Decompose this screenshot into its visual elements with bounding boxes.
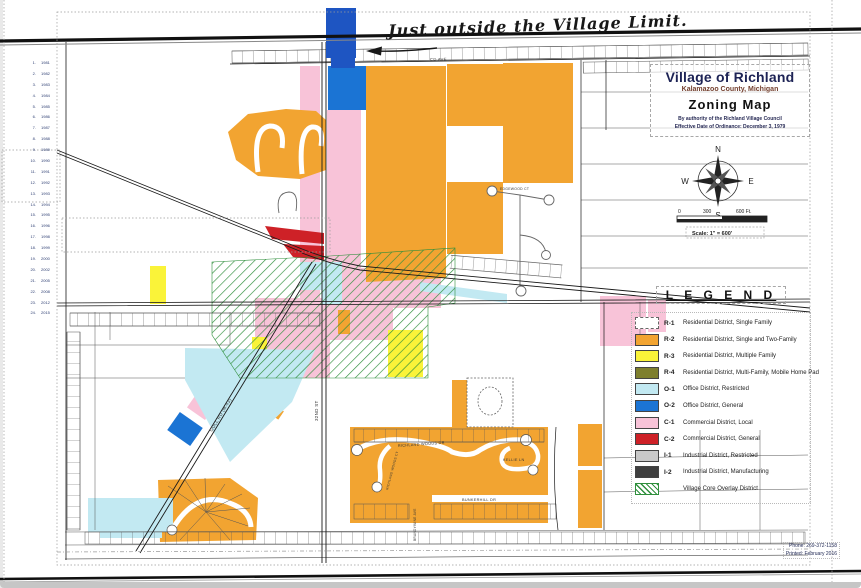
amendment-row: 20.2002 — [27, 267, 50, 274]
amendment-row: 16.1996 — [27, 223, 50, 230]
legend-code: R-3 — [664, 353, 678, 360]
legend-row: O-1 Office District, Restricted — [635, 383, 807, 395]
legend-swatch — [635, 383, 659, 395]
legend-code: O-1 — [664, 386, 678, 393]
amendment-row: 21.2005 — [27, 278, 50, 285]
legend-label: Village Core Overlay District — [683, 486, 758, 492]
scale-bar: 0 300 600 Ft. Scale: 1" = 600' — [677, 209, 767, 238]
footer-printed: Printed: February 2016 — [786, 551, 837, 559]
amendment-row: 15.1995 — [27, 212, 50, 219]
street-label-bunkerhill-dr: BUNKERHILL DR — [462, 498, 496, 502]
legend-label: Commercial District, General — [683, 436, 760, 442]
amendment-row: 8.1988 — [27, 136, 50, 143]
amendment-row: 17.1998 — [27, 234, 50, 241]
amendment-row: 5.1985 — [27, 104, 50, 111]
legend-label: Residential District, Single Family — [683, 320, 772, 326]
legend: L E G E N D R-1 Residential District, Si… — [631, 286, 811, 504]
legend-row: Village Core Overlay District — [635, 483, 807, 495]
street-label-edgewood-ct: EDGEWOOD CT — [500, 187, 529, 191]
scale-tick-300: 300 — [703, 209, 712, 215]
legend-label: Office District, Restricted — [683, 386, 749, 392]
legend-row: C-1 Commercial District, Local — [635, 417, 807, 429]
scale-text: Scale: 1" = 600' — [692, 231, 733, 237]
legend-title: L E G E N D — [656, 286, 786, 304]
amendment-row: 3.1983 — [27, 82, 50, 89]
legend-code: O-2 — [664, 402, 678, 409]
amendment-row: 24.2015 — [27, 310, 50, 317]
map-type-title: Zoning Map — [653, 97, 807, 112]
legend-row: R-1 Residential District, Single Family — [635, 317, 807, 329]
amendment-row: 11.1991 — [27, 169, 50, 176]
legend-swatch — [635, 350, 659, 362]
map-effective-date: Effective Date of Ordinance: December 3,… — [653, 124, 807, 132]
legend-label: Industrial District, Restricted — [683, 453, 758, 459]
page-bottom-edge — [0, 582, 861, 588]
legend-swatch — [635, 317, 659, 329]
legend-swatch — [635, 367, 659, 379]
amendment-list: 1.19812.19823.19834.19845.19856.19867.19… — [27, 60, 50, 321]
legend-code: C-2 — [664, 436, 678, 443]
legend-swatch — [635, 483, 659, 495]
legend-swatch — [635, 450, 659, 462]
map-authority-line: By authority of the Richland Village Cou… — [653, 116, 807, 124]
compass-e: E — [748, 177, 753, 186]
amendment-row: 14.1994 — [27, 202, 50, 209]
legend-row: C-2 Commercial District, General — [635, 433, 807, 445]
amendment-row: 9.1989 — [27, 147, 50, 154]
amendment-row: 10.1990 — [27, 158, 50, 165]
amendment-row: 22.2008 — [27, 289, 50, 296]
footer-phone: Phone: 269-372-1158 — [786, 543, 837, 551]
amendment-row: 12.1992 — [27, 180, 50, 187]
scanned-zoning-map-page: CD AVE 32ND ST GULL RD (M-43) RICHLAND W… — [0, 0, 861, 588]
amendment-row: 4.1984 — [27, 93, 50, 100]
amendment-row: 18.1999 — [27, 245, 50, 252]
amendment-row: 13.1993 — [27, 191, 50, 198]
legend-swatch — [635, 466, 659, 478]
legend-swatch — [635, 400, 659, 412]
street-label-cd-ave: CD AVE — [430, 57, 447, 62]
legend-code: R-1 — [664, 320, 678, 327]
legend-code: R-4 — [664, 369, 678, 376]
footer-note: Phone: 269-372-1158 Printed: February 20… — [706, 542, 840, 559]
map-title-block: Village of Richland Kalamazoo County, Mi… — [650, 64, 810, 137]
legend-row: I-2 Industrial District, Manufacturing — [635, 466, 807, 478]
legend-row: R-2 Residential District, Single and Two… — [635, 334, 807, 346]
legend-label: Office District, General — [683, 403, 743, 409]
legend-row: I-1 Industrial District, Restricted — [635, 450, 807, 462]
legend-label: Residential District, Multi-Family, Mobi… — [683, 370, 819, 376]
street-label-32nd-st: 32ND ST — [314, 400, 319, 421]
legend-label: Residential District, Single and Two-Fam… — [683, 337, 797, 343]
street-label-brandywine: BRANDYWINE AVE — [413, 508, 417, 541]
street-label-kellie-ln: KELLIE LN — [503, 458, 524, 462]
amendment-row: 7.1987 — [27, 125, 50, 132]
map-title: Village of Richland — [653, 69, 807, 85]
map-subtitle-county: Kalamazoo County, Michigan — [653, 86, 807, 93]
legend-swatch — [635, 433, 659, 445]
legend-label: Residential District, Multiple Family — [683, 353, 776, 359]
legend-row: R-4 Residential District, Multi-Family, … — [635, 367, 807, 379]
legend-code: I-1 — [664, 452, 678, 459]
amendment-row: 1.1981 — [27, 60, 50, 67]
compass-n: N — [715, 145, 721, 154]
amendment-row: 23.2012 — [27, 300, 50, 307]
legend-code: C-1 — [664, 419, 678, 426]
legend-code: I-2 — [664, 469, 678, 476]
legend-row: R-3 Residential District, Multiple Famil… — [635, 350, 807, 362]
legend-items: R-1 Residential District, Single Family … — [631, 312, 811, 504]
legend-swatch — [635, 334, 659, 346]
scale-tick-0: 0 — [678, 209, 681, 215]
amendment-row: 19.2000 — [27, 256, 50, 263]
compass-w: W — [681, 177, 689, 186]
scale-tick-600: 600 Ft. — [736, 209, 752, 215]
legend-label: Industrial District, Manufacturing — [683, 469, 769, 475]
amendment-row: 2.1982 — [27, 71, 50, 78]
legend-row: O-2 Office District, General — [635, 400, 807, 412]
legend-code: R-2 — [664, 336, 678, 343]
legend-swatch — [635, 417, 659, 429]
legend-label: Commercial District, Local — [683, 420, 753, 426]
amendment-row: 6.1986 — [27, 114, 50, 121]
